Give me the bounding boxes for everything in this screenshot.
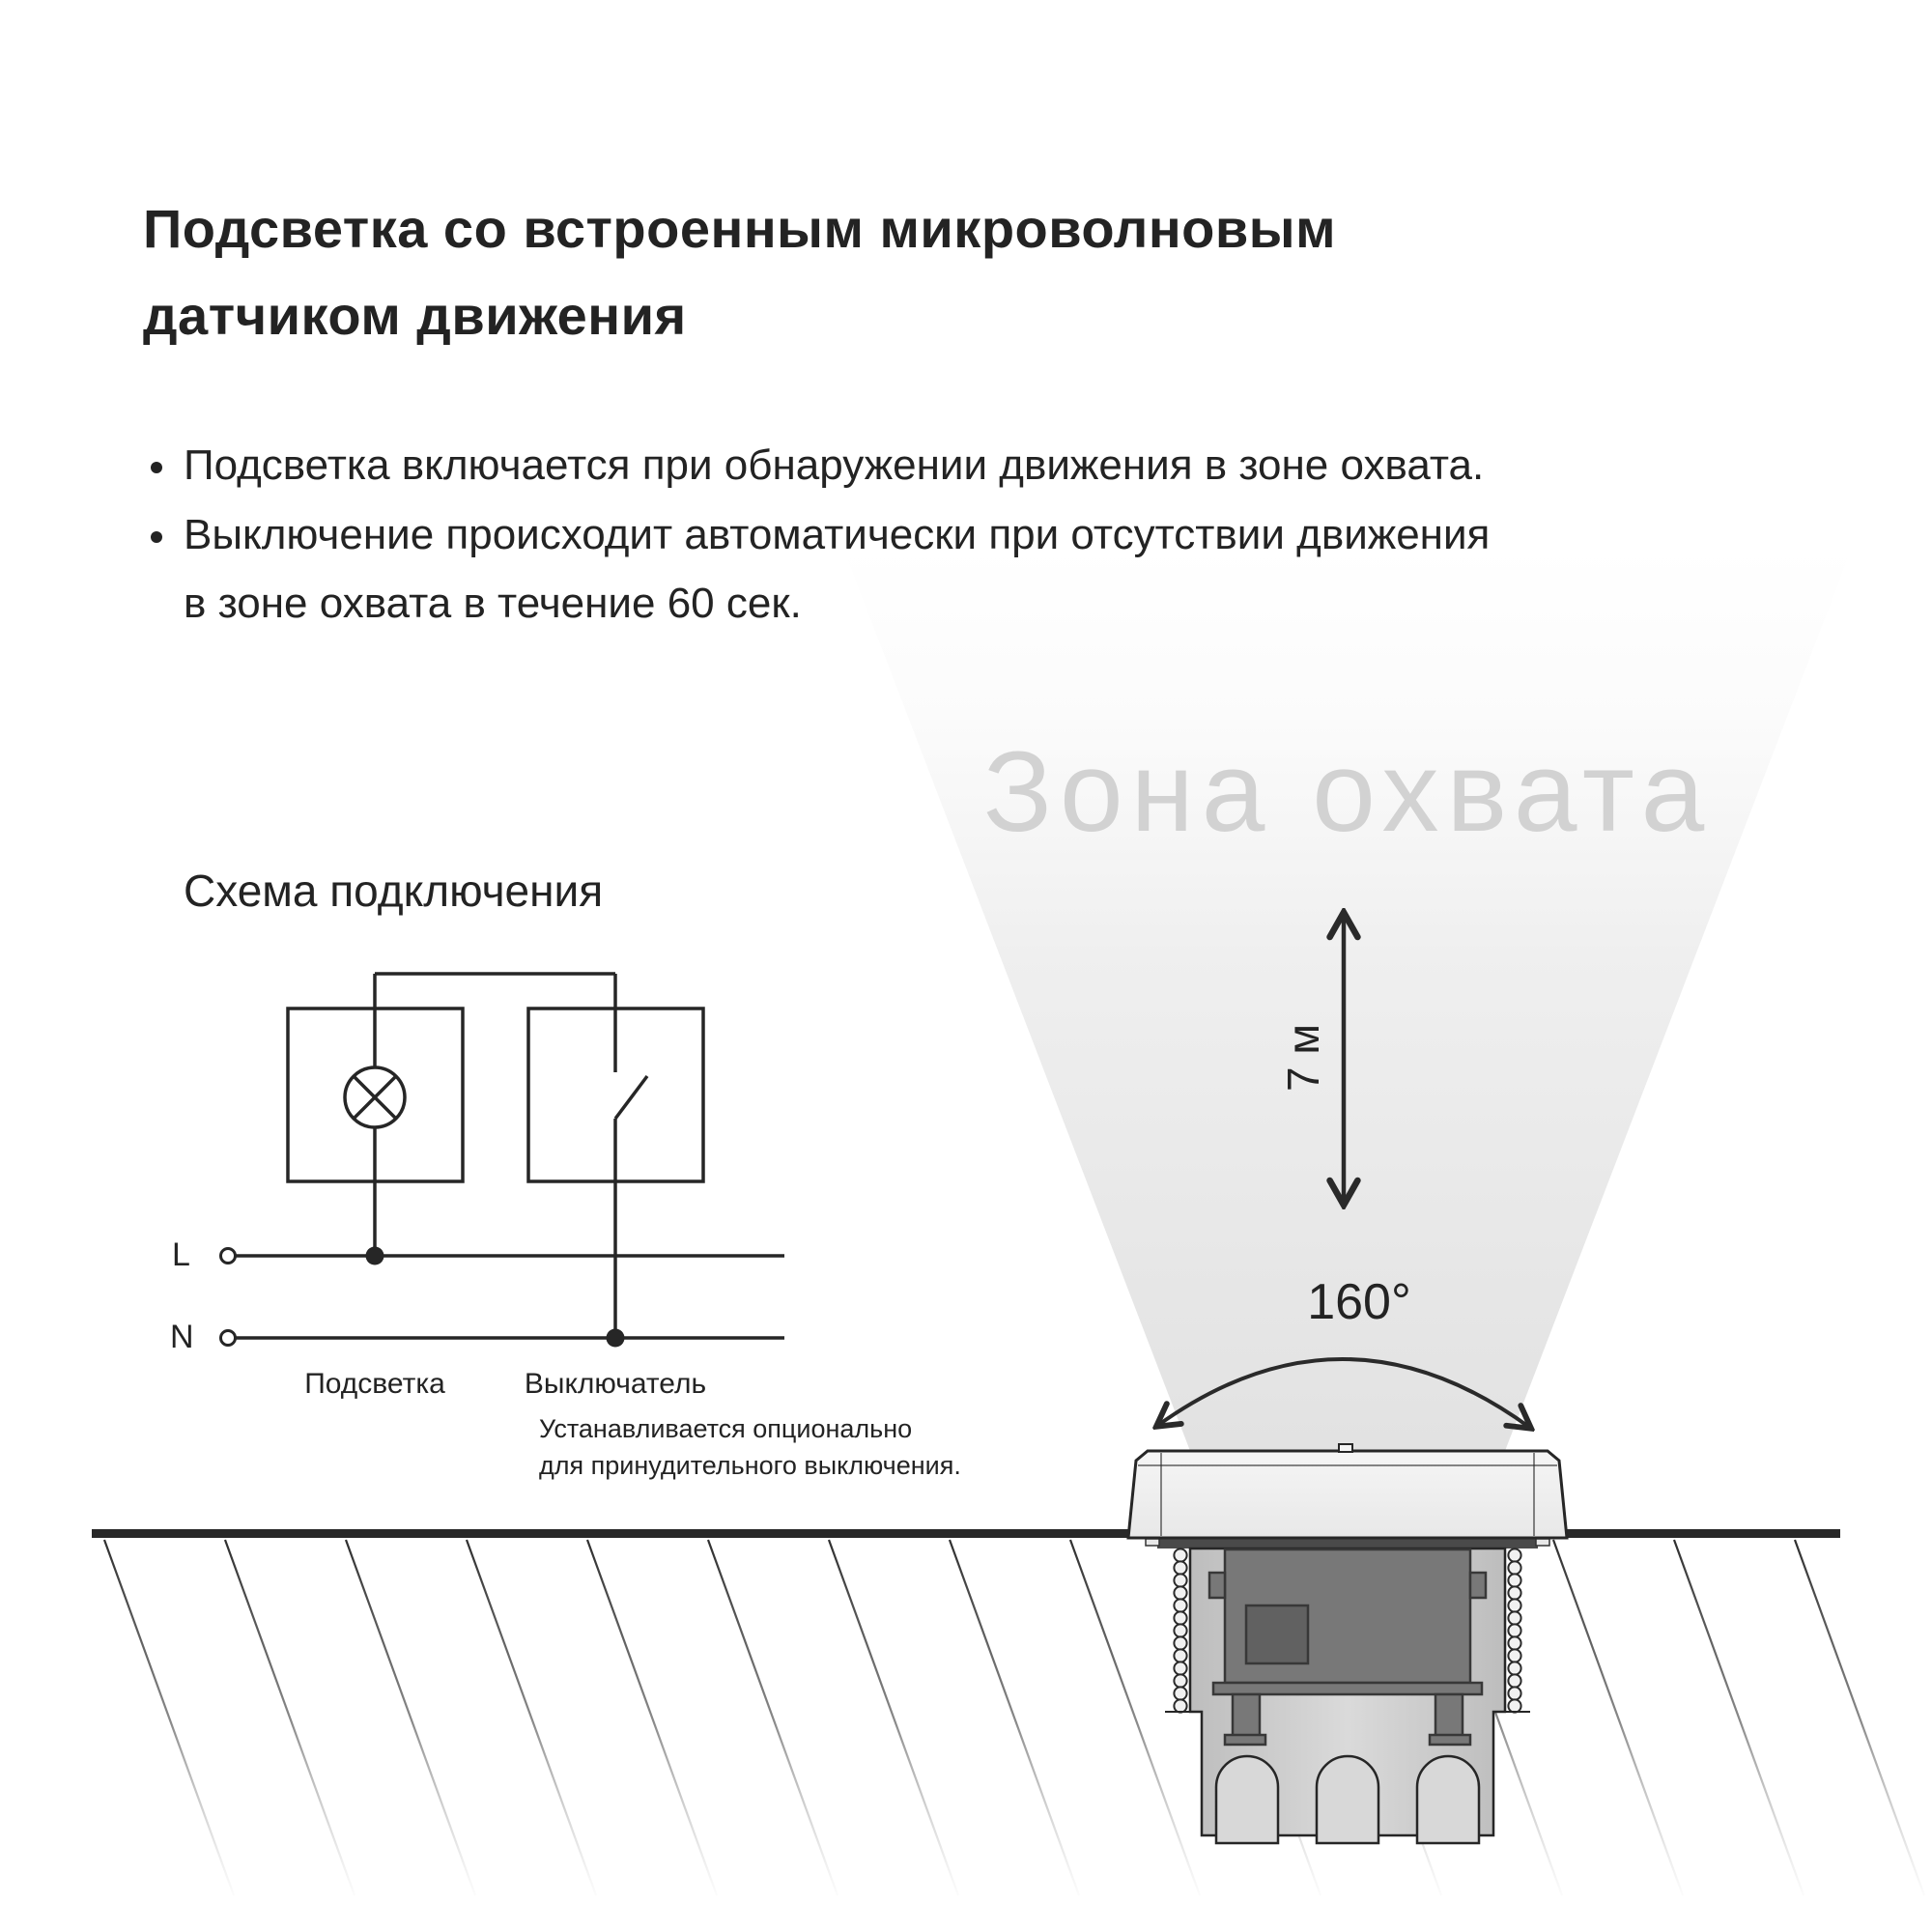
switch-note-line-2: для принудительного выключения. [539, 1451, 961, 1481]
angle-label: 160° [1307, 1273, 1411, 1331]
bullet-text: Подсветка включается при обнаружении дви… [184, 441, 1484, 490]
recessed-fixture [1128, 1444, 1567, 1843]
ground-line [92, 1529, 1840, 1538]
lamp-cross [354, 1076, 396, 1119]
infographic-page: Подсветка со встроенным микроволновым да… [0, 0, 1932, 1932]
coverage-zone-watermark: Зона охвата [983, 726, 1713, 858]
bullet-marker [151, 531, 162, 543]
page-title-line-1: Подсветка со встроенным микроволновым [143, 197, 1336, 260]
lamp-label: Подсветка [304, 1368, 445, 1401]
bullet-marker [151, 462, 162, 473]
ground-hatching [104, 1540, 1924, 1895]
terminal-n [221, 1331, 236, 1346]
switch-note-line-1: Устанавливается опционально [539, 1414, 912, 1444]
range-label: 7 м [1277, 1024, 1329, 1092]
fixture-bezel [1128, 1444, 1567, 1538]
junction-dot-l [366, 1247, 384, 1265]
page-title-line-2: датчиком движения [143, 284, 687, 347]
can-arches [1216, 1756, 1479, 1843]
switch-label: Выключатель [525, 1368, 706, 1401]
bullet-text: в зоне охвата в течение 60 сек. [184, 580, 802, 628]
switch-blade [615, 1076, 647, 1119]
terminal-l [221, 1249, 236, 1264]
wiring-diagram-heading: Схема подключения [184, 865, 603, 917]
wiring-diagram [221, 974, 785, 1348]
terminal-l-label: L [172, 1236, 190, 1274]
terminal-n-label: N [170, 1319, 194, 1356]
junction-dot-n [607, 1329, 625, 1348]
bullet-text: Выключение происходит автоматически при … [184, 511, 1490, 559]
